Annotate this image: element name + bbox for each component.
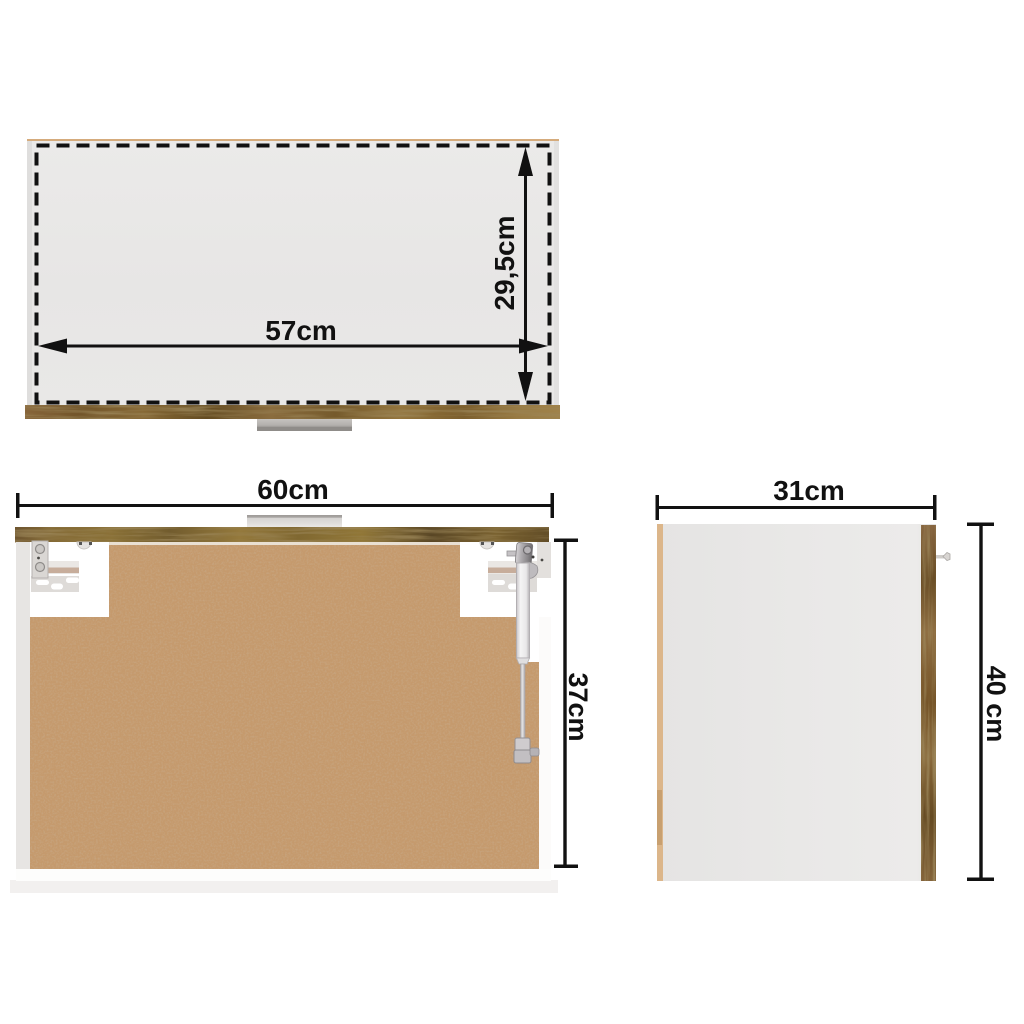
svg-text:60cm: 60cm xyxy=(257,474,329,505)
svg-text:29,5cm: 29,5cm xyxy=(489,216,520,311)
svg-text:31cm: 31cm xyxy=(773,475,845,506)
svg-text:40 cm: 40 cm xyxy=(981,666,1011,743)
svg-text:57cm: 57cm xyxy=(265,315,337,346)
svg-text:37cm: 37cm xyxy=(563,672,593,741)
